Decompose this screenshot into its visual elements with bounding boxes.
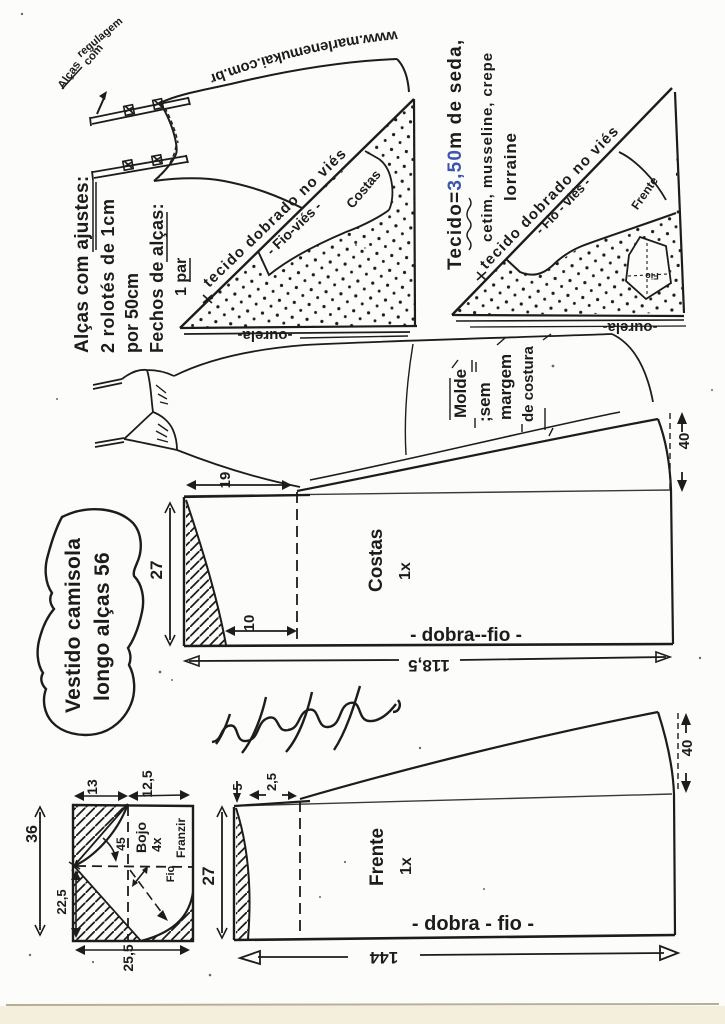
svg-text:10: 10 [241, 615, 258, 632]
svg-text:Franzir: Franzir [174, 818, 188, 858]
svg-text:36: 36 [24, 825, 41, 843]
svg-text:Fio: Fio [165, 865, 177, 882]
svg-text:cetim, musseline, crepe: cetim, musseline, crepe [479, 52, 496, 242]
svg-text:lorraine: lorraine [501, 132, 520, 201]
svg-text:Tecido=3,50m de seda,: Tecido=3,50m de seda, [445, 39, 466, 270]
svg-text:40: 40 [679, 740, 696, 757]
svg-text:Fio: Fio [645, 271, 659, 281]
svg-text:27: 27 [199, 867, 218, 886]
svg-text:118,5: 118,5 [408, 656, 450, 675]
svg-text:Costas: Costas [366, 529, 387, 592]
svg-text:27: 27 [147, 561, 166, 580]
svg-text:13: 13 [84, 779, 100, 795]
svg-text:Molde: Molde [451, 369, 470, 418]
svg-text:- dobra - fio -: - dobra - fio - [412, 913, 534, 935]
svg-text:longo alças 56: longo alças 56 [91, 552, 114, 701]
svg-text:144: 144 [369, 948, 398, 967]
svg-text:12,5: 12,5 [139, 770, 155, 797]
svg-text:2 rolotés de 1cm: 2 rolotés de 1cm [98, 198, 118, 353]
svg-text:22,5: 22,5 [54, 889, 69, 914]
svg-text:Alças com ajustes:: Alças com ajustes: [72, 175, 93, 353]
svg-text:por 50cm: por 50cm [122, 273, 142, 353]
svg-text:4x: 4x [149, 837, 164, 852]
svg-text:2,5: 2,5 [264, 773, 279, 791]
svg-text:Bojo: Bojo [133, 822, 149, 853]
svg-text:Fechos de alças:: Fechos de alças: [147, 203, 167, 353]
svg-text:40: 40 [676, 433, 693, 450]
svg-text:45: 45 [114, 837, 128, 851]
svg-text:1x: 1x [398, 857, 415, 875]
svg-text:1x: 1x [397, 562, 414, 580]
svg-text:19: 19 [217, 472, 234, 489]
svg-text:de costura: de costura [520, 345, 537, 422]
svg-text:1 par: 1 par [173, 258, 190, 296]
svg-text:Frente: Frente [367, 828, 388, 886]
svg-text:- dobra--fio -: - dobra--fio - [410, 625, 522, 646]
svg-text:25,5: 25,5 [120, 944, 136, 971]
svg-text:margem: margem [496, 354, 515, 420]
svg-text:-ourela-: -ourela- [237, 327, 292, 344]
svg-text:Vestido camisola: Vestido camisola [62, 538, 85, 713]
svg-text:;sem: ;sem [475, 382, 494, 422]
